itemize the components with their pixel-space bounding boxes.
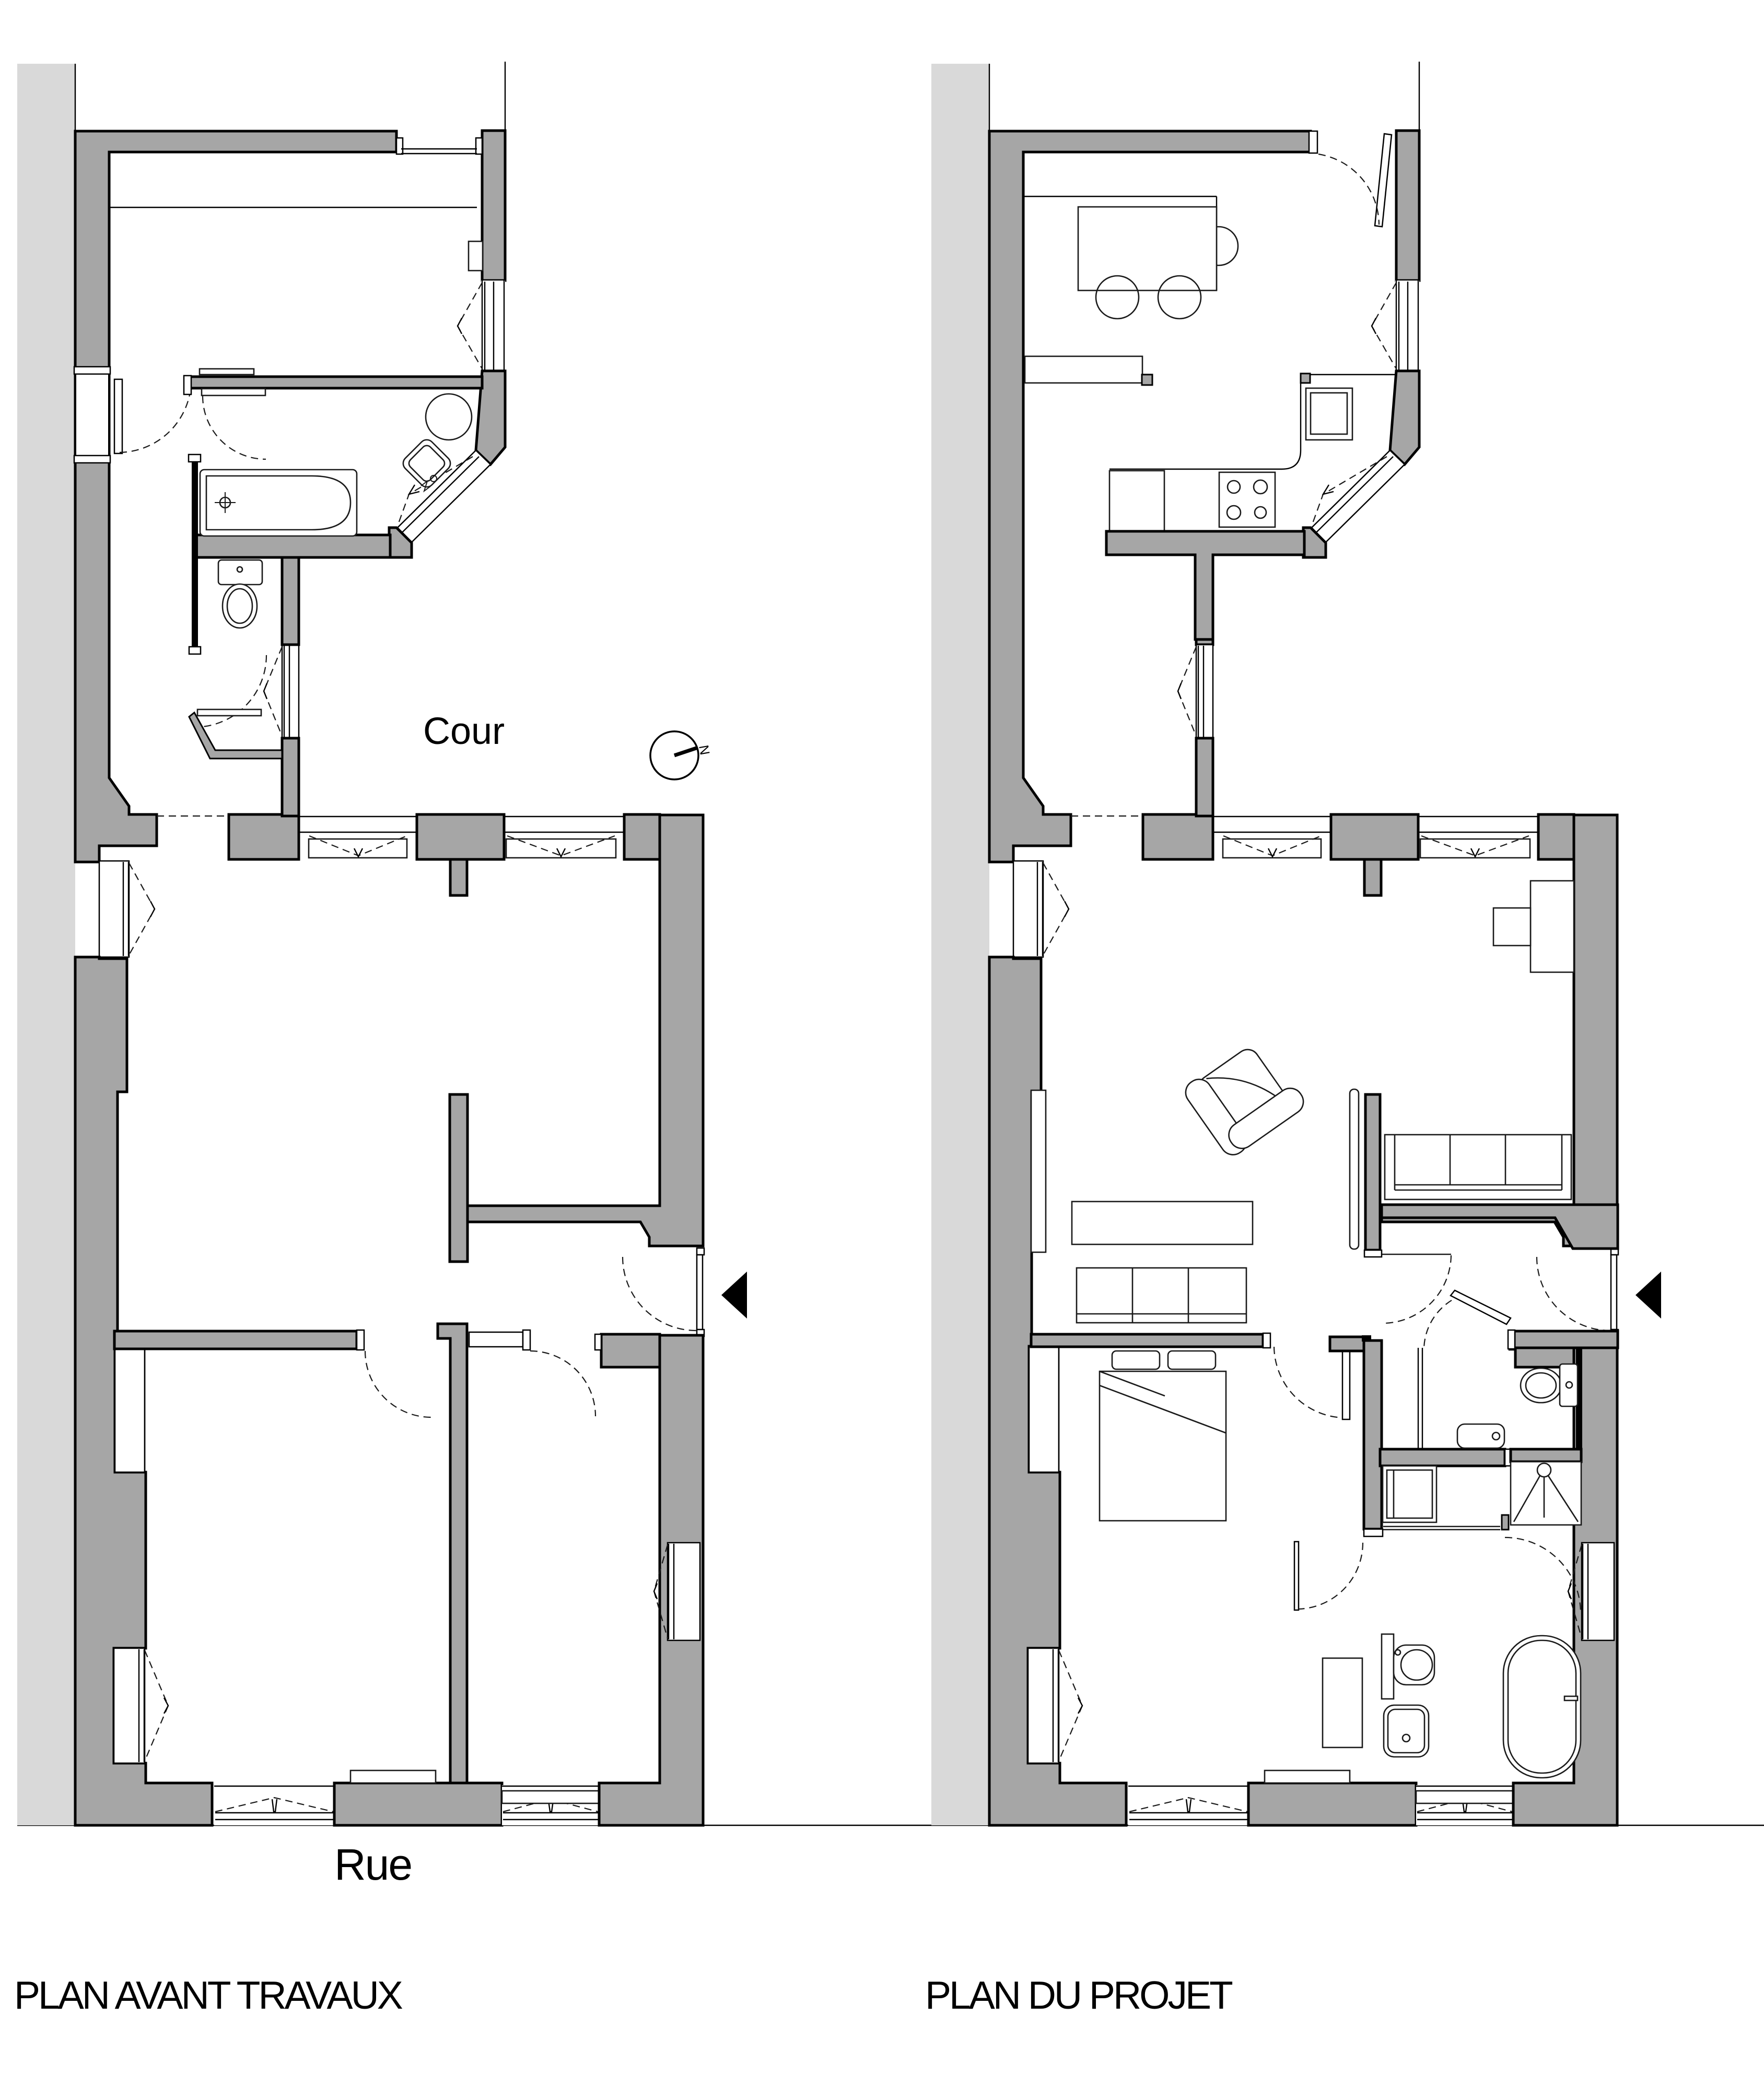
svg-text:PLAN DU PROJET: PLAN DU PROJET (925, 1973, 1233, 2017)
svg-text:Rue: Rue (334, 1840, 412, 1889)
svg-text:PLAN AVANT TRAVAUX: PLAN AVANT TRAVAUX (14, 1973, 403, 2017)
svg-text:Cour: Cour (423, 710, 505, 752)
